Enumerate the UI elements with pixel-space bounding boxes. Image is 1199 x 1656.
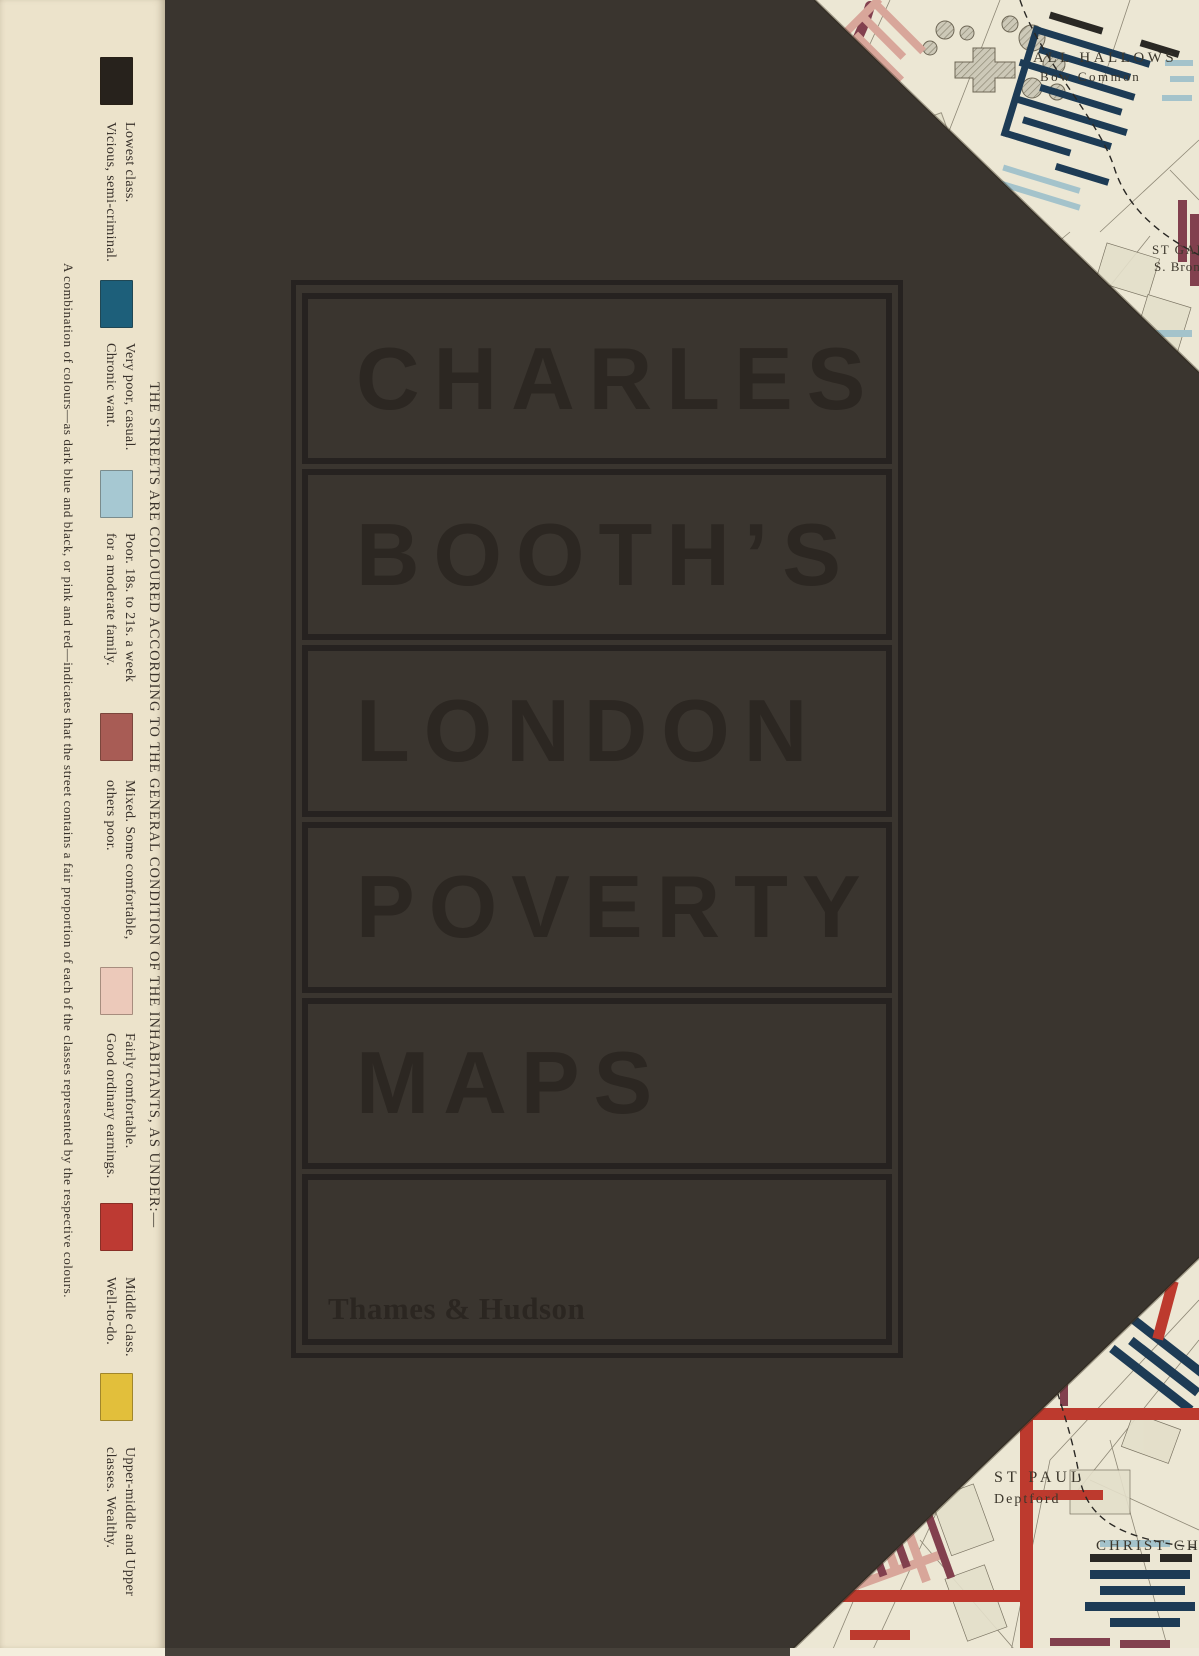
legend-label-line: Upper-middle and Upper — [120, 1447, 139, 1596]
title-word: POVERTY — [308, 863, 875, 951]
map-place-label: CHRIST CHU — [1096, 1538, 1199, 1554]
legend-swatch-upper-class — [100, 1373, 133, 1421]
title-box-booths: BOOTH’S — [302, 469, 892, 640]
map-place-label: Bow Common — [1040, 69, 1141, 84]
page-edge-right — [790, 1648, 1199, 1656]
map-place-label: S. Brom — [1154, 259, 1199, 274]
legend-label-lowest-class: Lowest class. Vicious, semi-criminal. — [101, 122, 139, 262]
legend-label-line: Good ordinary earnings. — [101, 1033, 120, 1179]
legend-label-upper-class: Upper-middle and Upper classes. Wealthy. — [101, 1447, 139, 1596]
legend-label-very-poor: Very poor, casual. Chronic want. — [101, 343, 139, 451]
map-place-label: ST GABR — [1152, 242, 1199, 257]
legend-label-line: Poor. 18s. to 21s. a week — [120, 533, 139, 682]
title-word: LONDON — [308, 687, 821, 775]
map-place-label: ALL HALLOWS — [1033, 50, 1177, 66]
legend-sidebar: Lowest class. Vicious, semi-criminal. Ve… — [0, 0, 165, 1648]
page-edge-middle — [165, 1648, 790, 1656]
title-word: CHARLES — [308, 335, 879, 423]
legend-label-line: Vicious, semi-criminal. — [101, 122, 120, 262]
legend-label-line: classes. Wealthy. — [101, 1447, 120, 1596]
map-place-label: Deptford — [994, 1492, 1061, 1507]
legend-label-line: for a moderate family. — [101, 533, 120, 682]
legend-label-line: Chronic want. — [101, 343, 120, 451]
publisher-logo: Thames & Hudson — [328, 1291, 585, 1327]
legend-label-line: Mixed. Some comfortable, — [120, 780, 139, 940]
legend-label-line: Fairly comfortable. — [120, 1033, 139, 1179]
legend-label-line: Lowest class. — [120, 122, 139, 262]
publisher-box: Thames & Hudson — [302, 1174, 892, 1345]
legend-heading-note: THE STREETS ARE COLOURED ACCORDING TO TH… — [145, 382, 162, 1228]
title-box-poverty: POVERTY — [302, 822, 892, 993]
legend-label-middle-class: Middle class. Well-to-do. — [101, 1277, 139, 1357]
legend-swatch-lowest-class — [100, 57, 133, 105]
title-word: MAPS — [308, 1039, 666, 1127]
legend-swatch-fairly-comfortable — [100, 967, 133, 1015]
title-box-maps: MAPS — [302, 998, 892, 1169]
legend-label-mixed: Mixed. Some comfortable, others poor. — [101, 780, 139, 940]
legend-swatch-middle-class — [100, 1203, 133, 1251]
legend-swatch-mixed — [100, 713, 133, 761]
legend-label-line: others poor. — [101, 780, 120, 940]
title-box-charles: CHARLES — [302, 293, 892, 464]
legend-label-line: Middle class. — [120, 1277, 139, 1357]
title-word: BOOTH’S — [308, 511, 855, 599]
legend-label-line: Very poor, casual. — [120, 343, 139, 451]
legend-label-poor: Poor. 18s. to 21s. a week for a moderate… — [101, 533, 139, 682]
title-box-london: LONDON — [302, 645, 892, 816]
page-edge-left — [0, 1648, 165, 1656]
title-frame: CHARLES BOOTH’S LONDON POVERTY MAPS Tham… — [291, 280, 903, 1358]
legend-label-line: Well-to-do. — [101, 1277, 120, 1357]
legend-combination-note: A combination of colours—as dark blue an… — [60, 263, 76, 1298]
legend-label-fairly-comfortable: Fairly comfortable. Good ordinary earnin… — [101, 1033, 139, 1179]
legend-swatch-poor — [100, 470, 133, 518]
legend-swatch-very-poor — [100, 280, 133, 328]
map-place-label: ST PAUL — [994, 1469, 1085, 1486]
book-cover: ALL HALLOWS Bow Common ST GABR S. Brom — [0, 0, 1199, 1656]
